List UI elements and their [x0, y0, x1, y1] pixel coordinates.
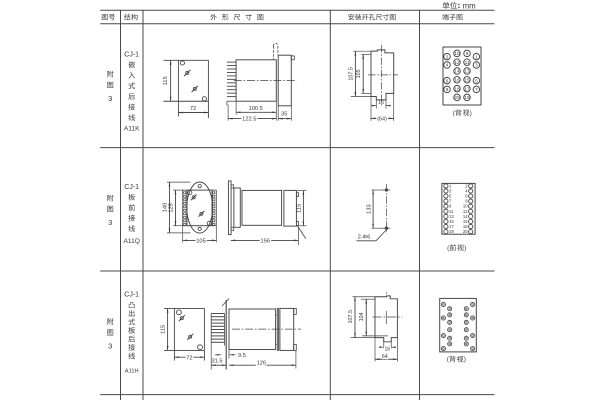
svg-text:5: 5 [475, 78, 478, 83]
svg-text:8: 8 [446, 87, 449, 92]
svg-text:115: 115 [160, 325, 166, 334]
svg-text:(64): (64) [377, 116, 387, 122]
svg-text:19: 19 [449, 229, 454, 234]
svg-text:126: 126 [257, 361, 267, 367]
svg-text:18: 18 [454, 86, 460, 91]
svg-text:(: ( [447, 356, 450, 363]
svg-text:20: 20 [463, 229, 468, 234]
svg-text:A11Q: A11Q [124, 238, 140, 245]
svg-text:A11H: A11H [125, 369, 139, 375]
svg-text:16: 16 [378, 100, 384, 106]
svg-text:): ) [464, 245, 466, 252]
svg-text:6: 6 [446, 78, 449, 83]
svg-text:CJ-1: CJ-1 [124, 52, 139, 59]
svg-text:72: 72 [190, 106, 196, 112]
svg-text:3: 3 [475, 63, 478, 68]
svg-text:2-Φ6: 2-Φ6 [358, 235, 371, 241]
svg-text:CJ-1: CJ-1 [124, 292, 139, 299]
svg-text:(: ( [447, 245, 450, 252]
svg-text:64: 64 [382, 354, 388, 360]
svg-text:14: 14 [454, 69, 460, 74]
svg-text:115: 115 [297, 204, 303, 213]
svg-text:11: 11 [465, 60, 470, 65]
svg-text:115: 115 [163, 76, 169, 85]
svg-text:105: 105 [356, 69, 362, 78]
svg-text:3: 3 [108, 342, 112, 351]
svg-text:A11K: A11K [124, 126, 140, 133]
svg-text:133: 133 [366, 204, 372, 214]
svg-text:104: 104 [359, 312, 365, 321]
svg-text:): ) [470, 110, 472, 117]
svg-text:156: 156 [261, 239, 271, 245]
svg-text:CJ-1: CJ-1 [124, 184, 139, 191]
svg-text:107.5: 107.5 [348, 310, 354, 324]
svg-text:mm: mm [463, 1, 476, 10]
svg-text:16: 16 [384, 346, 390, 352]
svg-text:9: 9 [466, 51, 469, 56]
svg-text:3: 3 [108, 94, 112, 103]
svg-text:72: 72 [186, 355, 192, 361]
svg-text:140: 140 [162, 203, 168, 213]
svg-text:2: 2 [446, 54, 449, 59]
svg-text:125: 125 [169, 203, 175, 213]
svg-text:20: 20 [454, 95, 460, 100]
svg-text:19: 19 [464, 95, 470, 100]
svg-text:100.5: 100.5 [249, 106, 263, 112]
svg-text:(: ( [453, 110, 456, 117]
svg-text:16: 16 [454, 78, 460, 83]
svg-text:105: 105 [196, 239, 206, 245]
svg-text:): ) [464, 356, 466, 363]
svg-text:15: 15 [464, 78, 470, 83]
svg-text:12: 12 [454, 60, 460, 65]
svg-text:35: 35 [281, 112, 287, 118]
svg-text:9.5: 9.5 [238, 353, 246, 359]
svg-text:31.5: 31.5 [211, 359, 222, 365]
svg-text:122.5: 122.5 [242, 117, 256, 123]
svg-text:7: 7 [475, 87, 478, 92]
svg-text:10: 10 [454, 51, 460, 56]
svg-text:4: 4 [446, 63, 449, 68]
svg-text:107.5: 107.5 [348, 67, 354, 81]
svg-text:1: 1 [475, 54, 478, 59]
svg-text:3: 3 [108, 218, 112, 227]
svg-text:17: 17 [464, 86, 470, 91]
svg-text:13: 13 [464, 69, 470, 74]
